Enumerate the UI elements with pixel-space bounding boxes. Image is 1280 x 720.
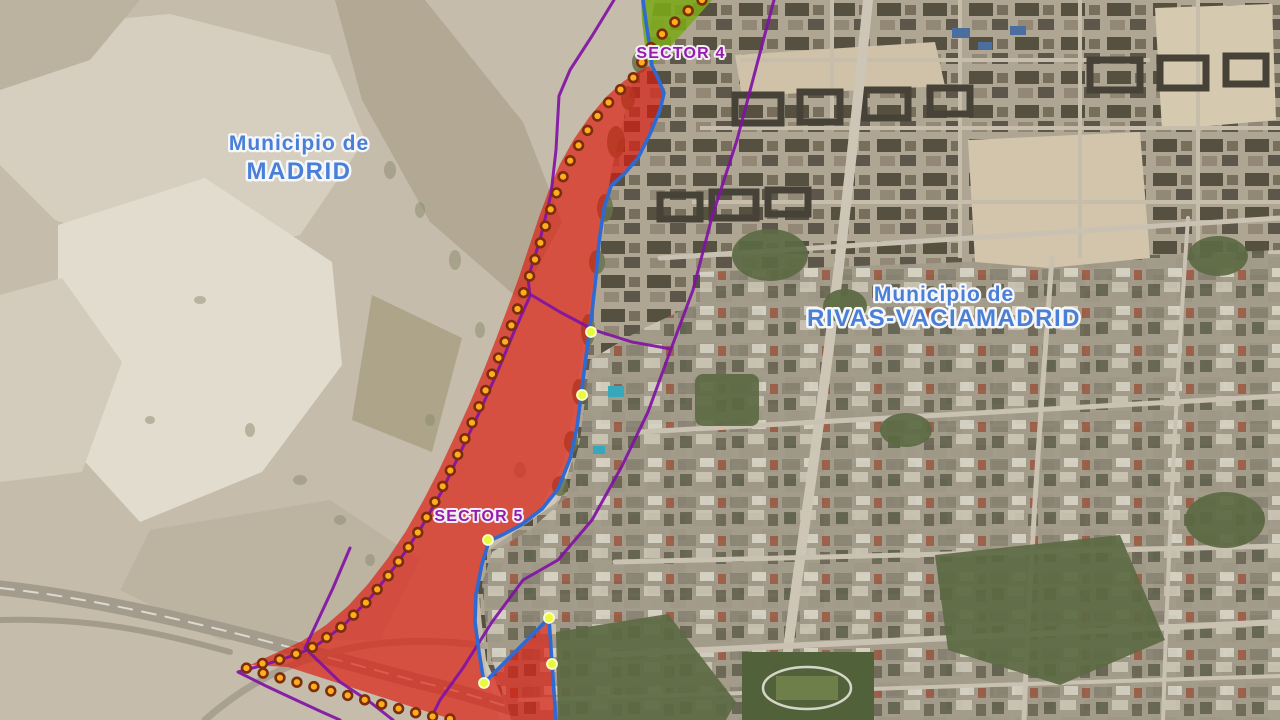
label-municipio-right-line2: RIVAS-VACIAMADRID (807, 305, 1081, 332)
label-sector-5: SECTOR 5 (434, 508, 523, 525)
label-municipio-right-line1: Municipio de (874, 283, 1014, 306)
label-municipio-left-line2: MADRID (247, 158, 352, 185)
map-viewport: Municipio de MADRID Municipio de RIVAS-V… (0, 0, 1280, 720)
label-sector-4: SECTOR 4 (636, 45, 725, 62)
sports-complex (742, 652, 874, 720)
label-municipio-left-line1: Municipio de (229, 132, 369, 155)
satellite-map: Municipio de MADRID Municipio de RIVAS-V… (0, 0, 1280, 720)
